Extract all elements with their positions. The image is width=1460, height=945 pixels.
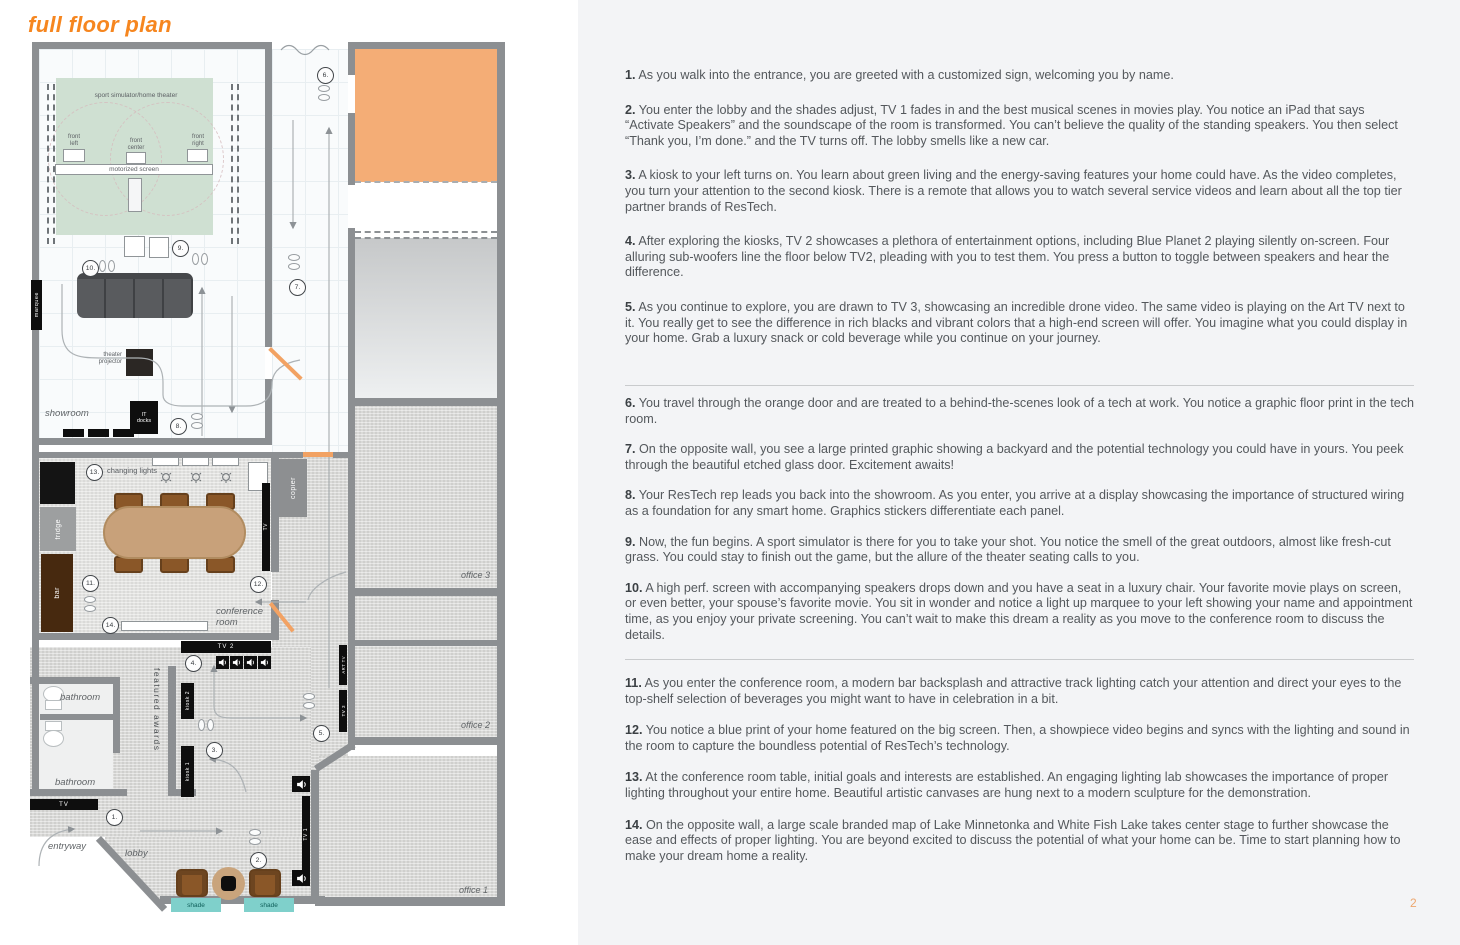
step-number: 4. xyxy=(625,234,636,248)
tour-section-2: 6. You travel through the orange door an… xyxy=(625,396,1415,658)
marker-14: 14. xyxy=(102,617,119,634)
tour-step-6: 6. You travel through the orange door an… xyxy=(625,396,1415,427)
marker-5: 5. xyxy=(313,725,330,742)
subwoofer xyxy=(216,656,229,669)
step-text: As you continue to explore, you are draw… xyxy=(625,300,1407,345)
tour-step-11: 11. As you enter the conference room, a … xyxy=(625,676,1415,707)
kiosk2-label: kiosk 2 xyxy=(185,691,191,710)
kiosk1-bar: kiosk 1 xyxy=(181,746,194,797)
step-number: 6. xyxy=(625,396,636,410)
step-text: As you walk into the entrance, you are g… xyxy=(638,68,1174,82)
tour-description-panel: 1. As you walk into the entrance, you ar… xyxy=(578,0,1460,945)
step-text: You travel through the orange door and a… xyxy=(625,396,1414,426)
featured-awards-label: featured awards xyxy=(152,668,162,796)
tv3-label: TV 3 xyxy=(341,705,346,717)
step-number: 5. xyxy=(625,300,636,314)
step-text: Your ResTech rep leads you back into the… xyxy=(625,488,1404,518)
kiosk1-label: kiosk 1 xyxy=(185,762,191,781)
step-number: 7. xyxy=(625,442,636,456)
step-number: 14. xyxy=(625,818,643,832)
copier-label: copier xyxy=(290,477,297,499)
step-text: A kiosk to your left turns on. You learn… xyxy=(625,168,1402,213)
footprints xyxy=(192,253,208,265)
marker-6: 6. xyxy=(317,67,334,84)
tv3-bar: TV 3 xyxy=(339,690,347,732)
tour-step-3: 3. A kiosk to your left turns on. You le… xyxy=(625,168,1415,215)
marker-3: 3. xyxy=(206,742,223,759)
tour-step-9: 9. Now, the fun begins. A sport simulato… xyxy=(625,535,1415,566)
step-text: As you enter the conference room, a mode… xyxy=(625,676,1401,706)
marker-1: 1. xyxy=(106,809,123,826)
tour-section-1: 1. As you walk into the entrance, you ar… xyxy=(625,68,1415,366)
office3-label: office 3 xyxy=(430,570,490,580)
subwoofer xyxy=(258,656,271,669)
front-center-label: front center xyxy=(122,138,150,151)
step-text: Now, the fun begins. A sport simulator i… xyxy=(625,535,1391,565)
office1-label: office 1 xyxy=(428,885,488,895)
marker-8: 8. xyxy=(170,418,187,435)
tour-step-13: 13. At the conference room table, initia… xyxy=(625,770,1415,801)
tour-step-12: 12. You notice a blue print of your home… xyxy=(625,723,1415,754)
section-divider xyxy=(625,385,1414,386)
changing-lights-label: changing lights xyxy=(107,466,157,475)
conference-room-label: conference room xyxy=(216,606,263,628)
footprints xyxy=(318,85,330,101)
tour-step-1: 1. As you walk into the entrance, you ar… xyxy=(625,68,1415,84)
tour-step-4: 4. After exploring the kiosks, TV 2 show… xyxy=(625,234,1415,281)
page-number: 2 xyxy=(1410,896,1417,910)
conference-tv-label: TV xyxy=(263,523,269,530)
lobby-label: lobby xyxy=(125,848,148,859)
sport-simulator-label: sport simulator/home theater xyxy=(66,92,206,99)
tv1-bar: TV 1 xyxy=(302,796,310,872)
step-text: At the conference room table, initial go… xyxy=(625,770,1388,800)
art-tv-bar: ART TV xyxy=(339,645,347,685)
tour-step-14: 14. On the opposite wall, a large scale … xyxy=(625,818,1415,865)
step-number: 13. xyxy=(625,770,643,784)
step-number: 3. xyxy=(625,168,636,182)
page: full floor plan xyxy=(0,0,1460,945)
footprints xyxy=(84,596,96,612)
floor-plan: full floor plan xyxy=(0,0,578,945)
window-shade: shade xyxy=(244,898,294,912)
step-text: You enter the lobby and the shades adjus… xyxy=(625,103,1398,148)
tour-step-7: 7. On the opposite wall, you see a large… xyxy=(625,442,1415,473)
step-number: 8. xyxy=(625,488,636,502)
step-text: A high perf. screen with accompanying sp… xyxy=(625,581,1412,642)
step-number: 11. xyxy=(625,676,642,690)
showroom-label: showroom xyxy=(45,408,89,419)
tour-step-8: 8. Your ResTech rep leads you back into … xyxy=(625,488,1415,519)
window-shade: shade xyxy=(171,898,221,912)
tour-section-3: 11. As you enter the conference room, a … xyxy=(625,676,1415,880)
orange-door xyxy=(303,452,333,457)
footprints xyxy=(303,693,315,709)
marker-4: 4. xyxy=(185,655,202,672)
copier: copier xyxy=(279,459,307,517)
step-text: On the opposite wall, you see a large pr… xyxy=(625,442,1404,472)
entry-tv-bar: TV xyxy=(30,799,98,810)
kiosk2-bar: kiosk 2 xyxy=(181,683,194,719)
marker-9: 9. xyxy=(172,240,189,257)
step-number: 9. xyxy=(625,535,636,549)
marker-11: 11. xyxy=(82,575,99,592)
step-text: On the opposite wall, a large scale bran… xyxy=(625,818,1400,863)
footprints xyxy=(288,254,300,270)
tv1-label: TV 1 xyxy=(303,828,309,841)
bathroom1-label: bathroom xyxy=(60,692,100,703)
subwoofer xyxy=(230,656,243,669)
standing-speaker xyxy=(292,776,310,792)
step-text: After exploring the kiosks, TV 2 showcas… xyxy=(625,234,1389,279)
tv2-label: TV 2 xyxy=(218,644,235,650)
marker-10: 10. xyxy=(82,260,99,277)
step-number: 10. xyxy=(625,581,643,595)
footprints xyxy=(99,260,115,272)
marker-7: 7. xyxy=(289,279,306,296)
shade-label: shade xyxy=(260,902,278,909)
subwoofer xyxy=(244,656,257,669)
entry-tv-label: TV xyxy=(59,802,69,808)
step-text: You notice a blue print of your home fea… xyxy=(625,723,1410,753)
footprints xyxy=(191,413,203,429)
marker-13: 13. xyxy=(86,464,103,481)
footprints xyxy=(198,719,214,731)
front-left-label: front left xyxy=(62,134,86,147)
tour-step-10: 10. A high perf. screen with accompanyin… xyxy=(625,581,1415,643)
office2-label: office 2 xyxy=(430,720,490,730)
marker-12: 12. xyxy=(250,576,267,593)
bathroom2-label: bathroom xyxy=(55,777,95,788)
theater-projector-label: theater projector xyxy=(84,352,122,365)
entryway-label: entryway xyxy=(48,841,86,852)
front-right-label: front right xyxy=(186,134,210,147)
tour-step-2: 2. You enter the lobby and the shades ad… xyxy=(625,103,1415,150)
marker-2: 2. xyxy=(250,852,267,869)
footprints xyxy=(249,829,261,845)
section-divider xyxy=(625,659,1414,660)
art-tv-label: ART TV xyxy=(341,656,346,674)
step-number: 12. xyxy=(625,723,643,737)
conference-tv: TV xyxy=(262,483,270,571)
tour-step-5: 5. As you continue to explore, you are d… xyxy=(625,300,1415,347)
tv2-bar: TV 2 xyxy=(181,641,271,653)
step-number: 2. xyxy=(625,103,636,117)
shade-label: shade xyxy=(187,902,205,909)
step-number: 1. xyxy=(625,68,636,82)
standing-speaker xyxy=(292,870,310,886)
